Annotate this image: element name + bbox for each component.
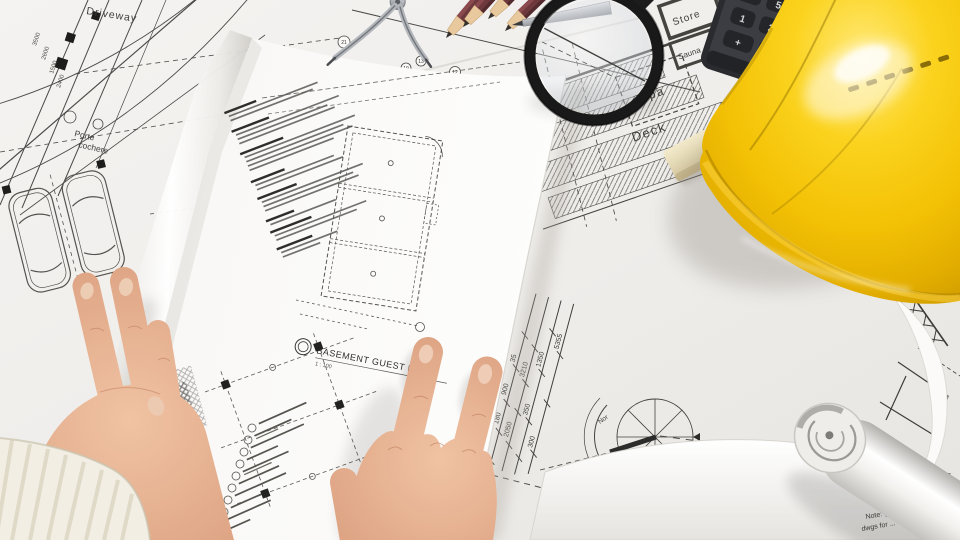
photo-canvas: Driveway Porte cochere 3500 2600 1500 24… [0, 0, 960, 540]
svg-text:21: 21 [341, 40, 347, 46]
blueprint-desk-photo: Driveway Porte cochere 3500 2600 1500 24… [0, 0, 960, 540]
magnifying-glass [525, 0, 665, 126]
